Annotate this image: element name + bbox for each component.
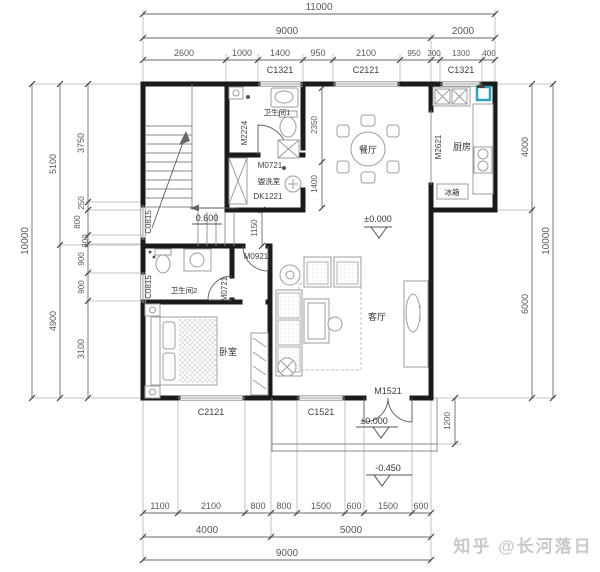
nightstand: [145, 386, 160, 398]
dim-hall: 1150: [250, 219, 259, 237]
watermark: 知乎 @长河落日: [452, 536, 592, 556]
level-stair: 0.600: [196, 213, 219, 223]
door-label-laundry: M0721: [258, 161, 283, 170]
room-label-living: 客厅: [368, 311, 386, 322]
bathroom2-fixtures: [149, 249, 212, 273]
dim-right-total: 10000: [541, 227, 552, 255]
dimensions-left: 10000 5100 4900 3750 250 800 300 900 900…: [20, 133, 90, 359]
window-label-left2: C0815: [144, 275, 153, 299]
window-label-left1: C0815: [144, 210, 153, 234]
dim-seg: 1300: [452, 49, 470, 58]
window-label-bottom1: C2121: [198, 407, 225, 417]
burner-2: [478, 161, 488, 171]
chair: [337, 125, 349, 137]
room-label-bedroom: 卧室: [219, 346, 237, 357]
dim-left-lower: 4900: [48, 311, 58, 331]
stair-direction-line: [152, 134, 186, 228]
washstand2: [184, 249, 211, 271]
dim-left-upper: 5100: [48, 154, 58, 174]
dim-seg: 300: [81, 234, 90, 248]
sofa-cushion: [307, 262, 328, 284]
dim-seg: 400: [482, 49, 496, 58]
burner-1: [478, 149, 488, 159]
dim-seg: 1500: [378, 501, 398, 511]
stair-arrow-head-2: [190, 205, 199, 212]
highlight-handle: [477, 85, 485, 88]
dim-seg: 900: [77, 252, 86, 266]
sofa-cushion: [337, 262, 358, 284]
dim-seg: 1000: [232, 48, 252, 58]
floor-drain-dot: [246, 95, 250, 99]
dim-seg: 950: [310, 48, 325, 58]
pillow: [163, 353, 175, 380]
dim-total-height: 10000: [20, 227, 31, 255]
level-porch-symbol: [356, 427, 398, 438]
door-label-hall: M0921: [244, 252, 269, 261]
dim-bottom-right: 5000: [340, 525, 363, 536]
door-label-kitchen: M2621: [434, 134, 443, 159]
level-porch: ±0.000: [360, 416, 387, 426]
chair: [387, 161, 399, 173]
dim-bottom-left: 4000: [196, 525, 219, 536]
bedroom-furniture: [145, 304, 268, 398]
dim-seg: 2100: [201, 501, 221, 511]
level-outside-symbol: [366, 475, 412, 486]
window-label: C1321: [267, 65, 294, 75]
nightstand: [145, 304, 160, 316]
dim-porch: 1200: [443, 412, 452, 430]
sofa-cushion: [278, 293, 300, 318]
corner-basin: [229, 87, 243, 99]
sink2-cross: [452, 89, 467, 104]
stove: [474, 147, 492, 173]
dim-dining-lower: 1400: [310, 175, 319, 193]
dim-top-left: 9000: [276, 26, 299, 37]
dim-right-lower: 6000: [520, 294, 530, 314]
dim-seg: 2100: [356, 48, 376, 58]
room-label-kitchen: 厨房: [453, 141, 471, 152]
shower-head-dot2: [153, 256, 156, 259]
dimensions-top: 11000 9000 2000 2600 1000 1400 950 2100 …: [174, 2, 496, 75]
dim-seg: 600: [346, 501, 361, 511]
dim-top-right: 2000: [452, 26, 475, 37]
dim-seg: 800: [73, 215, 82, 229]
dim-seg: 800: [250, 501, 265, 511]
blanket: [179, 319, 217, 383]
door-label-bath2: M0721: [220, 276, 229, 301]
toilet2-bowl: [156, 255, 170, 273]
room-label-dining: 餐厅: [359, 144, 377, 155]
room-label-bath1: 卫生间1: [264, 107, 291, 117]
window-label: C1321: [448, 65, 475, 75]
room-label-fridge: 冰箱: [445, 187, 460, 197]
dim-seg: 300: [427, 49, 441, 58]
chair: [361, 172, 375, 183]
chair: [337, 161, 349, 173]
dim-dining-upper: 2350: [310, 116, 319, 134]
sofa-cushion: [278, 320, 300, 345]
floor-plan-page: 11000 9000 2000 2600 1000 1400 950 2100 …: [0, 0, 600, 572]
toilet-bowl: [280, 117, 296, 137]
level-main-symbol: [364, 227, 392, 238]
dim-bottom-total: 9000: [276, 548, 299, 559]
side-table: [328, 317, 342, 331]
dim-seg: 2600: [174, 48, 194, 58]
toilet2-tank: [155, 249, 171, 255]
shower-head-dot: [149, 251, 152, 254]
dim-seg: 1400: [270, 48, 290, 58]
floor-plan-drawing: 11000 9000 2000 2600 1000 1400 950 2100 …: [0, 0, 600, 572]
chair: [361, 115, 375, 126]
room-label-bath2: 卫生间2: [171, 285, 198, 295]
dim-total-width: 11000: [305, 2, 333, 13]
dim-seg: 600: [413, 501, 428, 511]
window-label: C2121: [353, 65, 380, 75]
door-label-bath1: M2224: [240, 120, 249, 145]
pillow: [163, 322, 175, 349]
level-main: ±0.000: [364, 214, 391, 224]
sink1-cross: [435, 89, 450, 104]
dim-seg: 1500: [311, 501, 331, 511]
door-label-entry: M1521: [374, 386, 402, 396]
dim-seg: 250: [77, 196, 86, 210]
opening-label-laundry: DK1221: [254, 192, 283, 201]
window-label-bottom2: C1521: [308, 407, 335, 417]
dim-seg: 1100: [150, 501, 169, 511]
stair-arrow-head: [179, 131, 190, 145]
dim-seg: 3100: [76, 339, 86, 359]
level-outside: -0.450: [375, 463, 401, 473]
living-furniture: [276, 257, 428, 376]
plant-pot: [280, 265, 300, 285]
highlight-square: [477, 87, 490, 100]
stairs: [146, 84, 238, 246]
dim-right-upper: 4000: [520, 137, 530, 157]
dim-seg: 950: [407, 49, 421, 58]
dim-seg: 800: [276, 501, 291, 511]
drain-dot: [282, 166, 286, 170]
room-label-laundry: 盥洗室: [258, 176, 281, 186]
dimensions-bottom: 1100 2100 800 800 1500 600 1500 600 4000…: [150, 501, 428, 559]
chair: [387, 125, 399, 137]
dim-seg: 900: [77, 280, 86, 294]
dim-seg: 3750: [76, 133, 86, 153]
